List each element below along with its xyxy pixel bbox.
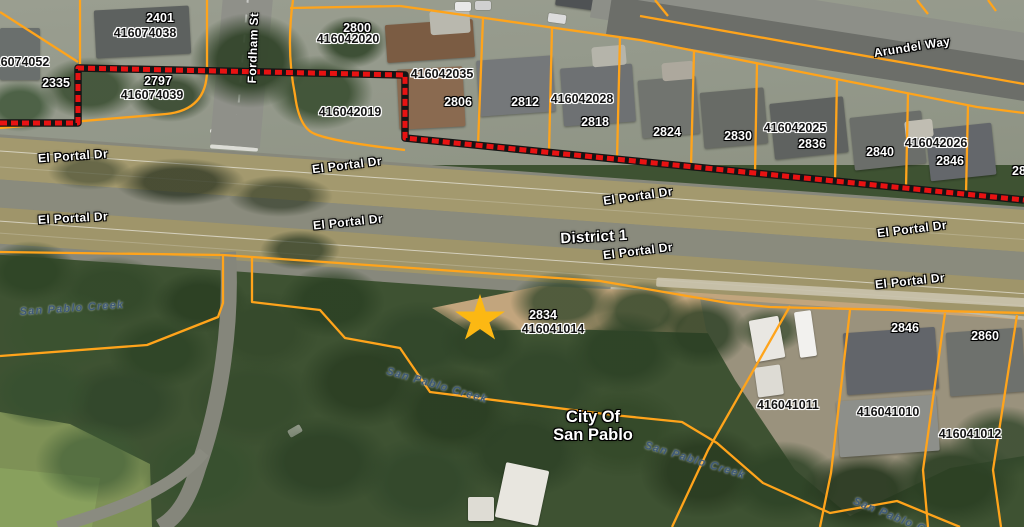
street-label: El Portal Dr: [311, 155, 382, 175]
parcel-number-label: 2840: [866, 146, 894, 159]
creek-label: San Pablo Creek: [19, 300, 124, 318]
apn-label: 416074039: [121, 89, 184, 102]
apn-label: 416041011: [757, 399, 819, 412]
apn-label: 416041012: [939, 428, 1002, 441]
aerial-map[interactable]: El Portal DrEl Portal DrEl Portal DrEl P…: [0, 0, 1024, 527]
apn-label: 416074052: [0, 56, 49, 69]
district-label: District 1: [560, 228, 628, 246]
street-label: Arundel Way: [873, 35, 951, 59]
parcel-number-label: 2797: [144, 75, 172, 88]
apn-label: 416042025: [764, 122, 827, 135]
street-label: El Portal Dr: [602, 185, 673, 207]
city-label-line2: San Pablo: [553, 426, 633, 444]
apn-label: 416042019: [319, 106, 382, 119]
apn-label: 416041010: [857, 406, 920, 419]
parcel-number-label: 2846: [936, 155, 964, 168]
city-label-line1: City Of: [553, 408, 633, 426]
apn-label: 416042020: [317, 33, 380, 46]
creek-label: San Pablo Creek: [851, 496, 952, 527]
street-label: Fordham St: [246, 12, 260, 83]
street-label: El Portal Dr: [876, 219, 947, 239]
parcel-number-label: 2830: [724, 130, 752, 143]
parcel-number-label: 2401: [146, 12, 174, 25]
street-label: El Portal Dr: [312, 212, 383, 231]
creek-label: San Pablo Creek: [385, 366, 489, 405]
parcel-number-label: 2846: [891, 322, 919, 335]
parcel-number-label: 2335: [42, 77, 70, 90]
parcel-number-label: 2860: [971, 330, 999, 343]
street-label: El Portal Dr: [874, 271, 945, 290]
parcel-number-label: 2806: [444, 96, 472, 109]
street-label: El Portal Dr: [38, 210, 109, 226]
apn-label: 416042035: [411, 68, 474, 81]
parcel-number-label: 2812: [511, 96, 539, 109]
city-boundary-label: City Of San Pablo: [553, 408, 633, 444]
parcel-number-label: 2836: [798, 138, 826, 151]
apn-label: 416042028: [551, 93, 614, 106]
parcel-number-label: 2818: [581, 116, 609, 129]
street-label: El Portal Dr: [38, 148, 109, 165]
parcel-number-label: 28: [1012, 165, 1024, 178]
map-labels-layer: El Portal DrEl Portal DrEl Portal DrEl P…: [0, 0, 1024, 527]
parcel-number-label: 2834: [529, 309, 557, 322]
parcel-number-label: 2824: [653, 126, 681, 139]
apn-label: 416041014: [522, 323, 585, 336]
apn-label: 416074038: [114, 27, 177, 40]
creek-label: San Pablo Creek: [643, 440, 746, 481]
apn-label: 416042026: [905, 137, 968, 150]
